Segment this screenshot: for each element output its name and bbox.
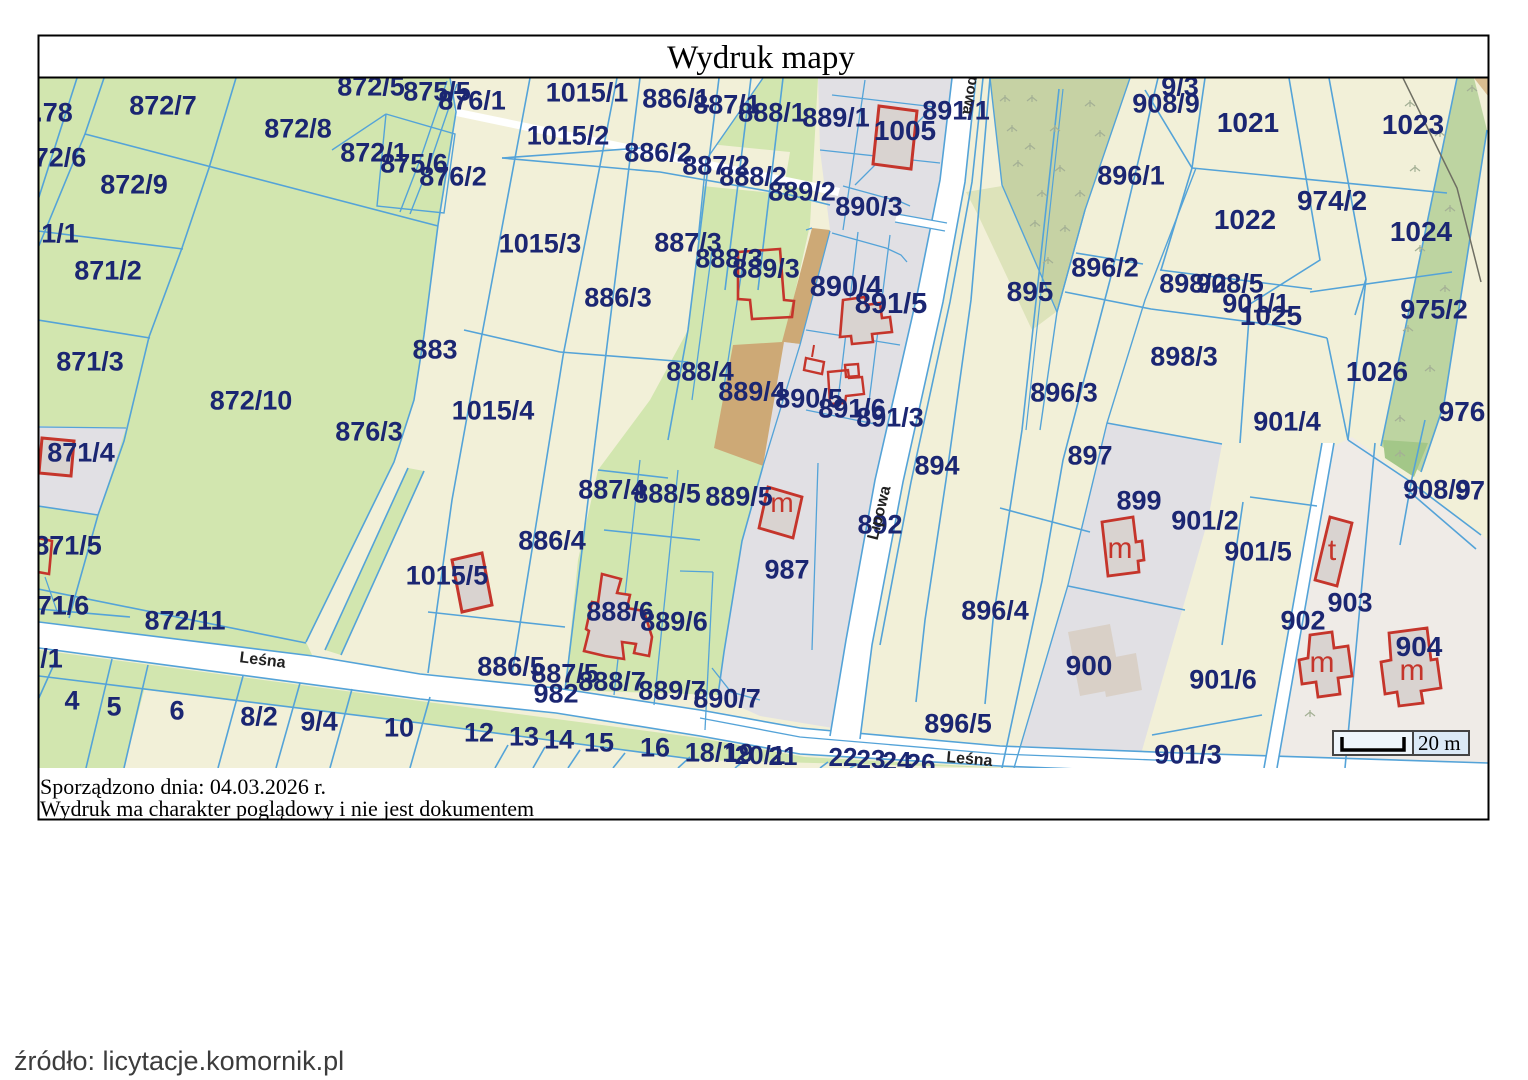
svg-text:9/4: 9/4 xyxy=(300,706,338,736)
svg-text:1015/1: 1015/1 xyxy=(546,77,629,107)
svg-text:1025: 1025 xyxy=(1240,300,1302,331)
svg-text:1/1: 1/1 xyxy=(41,218,79,248)
svg-text:źródło: licytacje.komornik.pl: źródło: licytacje.komornik.pl xyxy=(14,1046,344,1076)
svg-text:.78: .78 xyxy=(35,97,73,127)
svg-text:982: 982 xyxy=(533,678,578,708)
svg-text:889/3: 889/3 xyxy=(732,253,800,283)
svg-text:889/6: 889/6 xyxy=(640,606,708,636)
svg-text:872/9: 872/9 xyxy=(100,169,168,199)
svg-text:975/2: 975/2 xyxy=(1400,294,1468,324)
svg-text:889/1: 889/1 xyxy=(802,102,870,132)
svg-text:m: m xyxy=(1310,646,1335,679)
svg-text:14: 14 xyxy=(544,724,574,754)
svg-text:13: 13 xyxy=(509,721,539,751)
svg-text:886/4: 886/4 xyxy=(518,525,586,555)
svg-text:889/2: 889/2 xyxy=(768,176,836,206)
svg-text:1015/2: 1015/2 xyxy=(527,120,610,150)
svg-text:888/7: 888/7 xyxy=(578,666,646,696)
svg-text:16: 16 xyxy=(640,732,670,762)
svg-text:899: 899 xyxy=(1116,485,1161,515)
svg-text:871/2: 871/2 xyxy=(74,255,142,285)
svg-text:890/3: 890/3 xyxy=(835,191,903,221)
svg-text:1015/4: 1015/4 xyxy=(452,395,535,425)
svg-text:871/3: 871/3 xyxy=(56,346,124,376)
svg-text:908/9: 908/9 xyxy=(1132,88,1200,118)
svg-text:896/4: 896/4 xyxy=(961,595,1029,625)
svg-text:902: 902 xyxy=(1280,605,1325,635)
svg-text:72/6: 72/6 xyxy=(34,142,87,172)
svg-text:901/5: 901/5 xyxy=(1224,536,1292,566)
svg-text:m: m xyxy=(1108,532,1133,565)
svg-text:Wydruk ma charakter poglądowy: Wydruk ma charakter poglądowy i nie jest… xyxy=(40,796,534,821)
svg-text:895: 895 xyxy=(1007,276,1054,307)
svg-text:903: 903 xyxy=(1327,587,1372,617)
svg-text:21: 21 xyxy=(769,741,798,771)
svg-text:891/5: 891/5 xyxy=(855,288,928,320)
svg-text:901/4: 901/4 xyxy=(1253,406,1321,436)
svg-text:974/2: 974/2 xyxy=(1297,185,1367,216)
svg-text:900: 900 xyxy=(1066,650,1113,681)
svg-text:m: m xyxy=(770,487,793,518)
svg-text:876/2: 876/2 xyxy=(419,161,487,191)
svg-text:15: 15 xyxy=(584,727,614,757)
svg-text:871/4: 871/4 xyxy=(47,437,115,467)
svg-text:5: 5 xyxy=(106,691,121,721)
svg-text:987: 987 xyxy=(764,554,809,584)
svg-text:6: 6 xyxy=(169,695,184,725)
svg-text:888/5: 888/5 xyxy=(633,478,701,508)
svg-text:1015/5: 1015/5 xyxy=(406,560,489,590)
svg-text:8/2: 8/2 xyxy=(240,701,278,731)
svg-text:897: 897 xyxy=(1067,440,1112,470)
svg-text:1023: 1023 xyxy=(1382,109,1444,140)
svg-text:888/1: 888/1 xyxy=(738,97,806,127)
svg-text:1021: 1021 xyxy=(1217,107,1279,138)
svg-text:10: 10 xyxy=(384,712,414,742)
svg-text:896/5: 896/5 xyxy=(924,708,992,738)
svg-text:t: t xyxy=(1328,534,1337,567)
svg-text:901/2: 901/2 xyxy=(1171,505,1239,535)
svg-text:883: 883 xyxy=(412,334,457,364)
svg-text:872/8: 872/8 xyxy=(264,113,332,143)
svg-text:97: 97 xyxy=(1455,475,1485,505)
svg-text:904: 904 xyxy=(1396,631,1443,662)
svg-text:20 m: 20 m xyxy=(1418,731,1461,755)
svg-text:1015/3: 1015/3 xyxy=(499,228,582,258)
svg-text:12: 12 xyxy=(464,717,494,747)
svg-text:Wydruk mapy: Wydruk mapy xyxy=(667,40,855,76)
svg-text:901/3: 901/3 xyxy=(1154,739,1222,769)
svg-text:896/2: 896/2 xyxy=(1071,252,1139,282)
svg-text:22: 22 xyxy=(829,742,858,772)
svg-text:1026: 1026 xyxy=(1346,356,1408,387)
svg-text:1022: 1022 xyxy=(1214,204,1276,235)
svg-text:872/10: 872/10 xyxy=(210,385,293,415)
svg-text:891/3: 891/3 xyxy=(856,402,924,432)
svg-text:891/1: 891/1 xyxy=(922,95,990,125)
svg-text:876/3: 876/3 xyxy=(335,416,403,446)
svg-text:886/3: 886/3 xyxy=(584,282,652,312)
svg-text:876/1: 876/1 xyxy=(438,85,506,115)
svg-text:1024: 1024 xyxy=(1390,216,1453,247)
svg-text:896/1: 896/1 xyxy=(1097,160,1165,190)
svg-text:901/6: 901/6 xyxy=(1189,664,1257,694)
svg-text:872/11: 872/11 xyxy=(144,605,225,635)
svg-text:871/5: 871/5 xyxy=(34,530,102,560)
svg-text:4: 4 xyxy=(64,685,79,715)
svg-text:976: 976 xyxy=(1439,396,1486,427)
svg-text:889/5: 889/5 xyxy=(705,481,773,511)
svg-text:872/7: 872/7 xyxy=(129,90,197,120)
svg-text:890/7: 890/7 xyxy=(693,683,761,713)
svg-text:894: 894 xyxy=(914,450,959,480)
svg-text:898/3: 898/3 xyxy=(1150,341,1218,371)
svg-text:71/6: 71/6 xyxy=(37,590,90,620)
svg-text:896/3: 896/3 xyxy=(1030,377,1098,407)
